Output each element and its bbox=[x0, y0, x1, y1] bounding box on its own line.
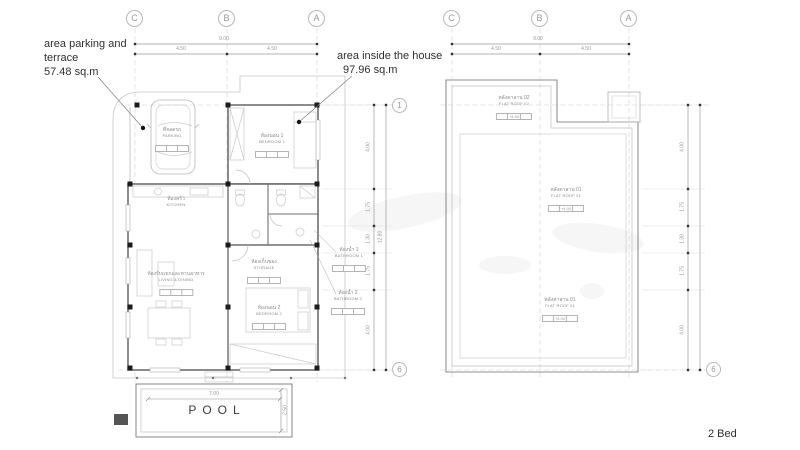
bed-count-label: 2 Bed bbox=[708, 428, 737, 440]
grid-bubble-b-right: B bbox=[531, 10, 548, 27]
room-label-bathroom1: ห้องน้ำ 1 BATHROOM 1 bbox=[332, 248, 366, 277]
dim-v-left-4: 1.75 bbox=[367, 266, 372, 276]
room-living-en: LIVING & DINING bbox=[147, 278, 204, 283]
roof02-en: FLAT ROOF 02 bbox=[496, 102, 532, 107]
room-label-kitchen: ห้องครัว KITCHEN bbox=[167, 197, 186, 207]
dim-v-right-1: 4.00 bbox=[681, 142, 686, 152]
room-label-bathroom2: ห้องน้ำ 2 BATHROOM 2 bbox=[331, 291, 365, 320]
level-strip bbox=[159, 289, 193, 296]
room-storage-en: STORAGE bbox=[247, 266, 281, 271]
dim-overall-right: 9.00 bbox=[533, 37, 543, 42]
dim-v-left-overall: 12.80 bbox=[379, 231, 384, 244]
roof02-level: +4.50 bbox=[508, 114, 521, 119]
dim-overall-left: 9.00 bbox=[219, 37, 229, 42]
level-strip bbox=[332, 265, 366, 272]
dim-v-right-4: 1.75 bbox=[681, 266, 686, 276]
room-label-parking: ที่จอดรถ PARKING bbox=[155, 128, 189, 157]
room-label-bedroom2: ห้องนอน 2 BEDROOM 2 bbox=[252, 306, 286, 335]
dim-seg-left-2: 4.50 bbox=[267, 47, 277, 52]
annotation-parking-area: area parking and terrace bbox=[44, 38, 127, 66]
pool-dim-width: 7.00 bbox=[209, 392, 219, 397]
grid-bubble-a-left: A bbox=[308, 10, 325, 27]
level-strip bbox=[252, 323, 286, 330]
blueprint-canvas: C B A C B A 1 6 6 9.00 4.50 4.50 9.00 4.… bbox=[0, 0, 800, 450]
level-strip bbox=[331, 308, 365, 315]
roof-label-flat-roof-02: หลังคาลาน 02 FLAT ROOF 02 +4.50 bbox=[496, 96, 532, 125]
pool-equipment bbox=[114, 414, 128, 425]
room-label-living: ห้องรับแขกและทานอาหาร LIVING & DINING bbox=[147, 272, 204, 301]
annotation-inside-value: 97.96 sq.m bbox=[343, 64, 397, 78]
pool-label: POOL bbox=[188, 403, 245, 417]
annotation-parking-line1: area parking and bbox=[44, 38, 127, 52]
dim-v-left-3: 1.30 bbox=[367, 234, 372, 244]
dim-seg-right-2: 4.50 bbox=[581, 47, 591, 52]
room-bathroom2-en: BATHROOM 2 bbox=[331, 297, 365, 302]
room-kitchen-en: KITCHEN bbox=[167, 203, 186, 208]
grid-bubble-row6-right: 6 bbox=[706, 362, 721, 377]
level-strip: +4.00 bbox=[542, 315, 578, 322]
dim-seg-right-1: 4.50 bbox=[491, 47, 501, 52]
dim-v-left-5: 4.00 bbox=[367, 325, 372, 335]
pool-dim-depth: 2.50 bbox=[284, 405, 289, 415]
floor-plan-linework bbox=[98, 28, 402, 437]
level-strip: +4.50 bbox=[496, 113, 532, 120]
grid-bubble-row1-left: 1 bbox=[392, 98, 407, 113]
level-strip bbox=[255, 151, 289, 158]
plan-drawing bbox=[0, 0, 800, 450]
roof01b-level: +4.00 bbox=[554, 316, 567, 321]
dim-v-right-5: 4.00 bbox=[681, 325, 686, 335]
roof-label-flat-roof-01-upper: หลังคาลาน 01 FLAT ROOF 01 +4.00 bbox=[548, 188, 584, 217]
annotation-inside-area: area inside the house bbox=[337, 50, 442, 64]
grid-bubble-b-left: B bbox=[218, 10, 235, 27]
level-strip bbox=[247, 277, 281, 284]
annotation-parking-line2: terrace bbox=[44, 52, 127, 66]
dim-v-right-2: 1.75 bbox=[681, 202, 686, 212]
dim-v-left-1: 4.00 bbox=[367, 142, 372, 152]
grid-bubble-c-left: C bbox=[126, 10, 143, 27]
roof-label-flat-roof-01-lower: หลังคาลาน 01 FLAT ROOF 01 +4.00 bbox=[542, 298, 578, 327]
level-strip: +4.00 bbox=[548, 205, 584, 212]
grid-bubble-row6-left: 6 bbox=[392, 362, 407, 377]
room-label-storage: ห้องเก็บของ STORAGE bbox=[247, 260, 281, 289]
roof01b-en: FLAT ROOF 01 bbox=[542, 304, 578, 309]
dim-seg-left-1: 4.50 bbox=[176, 47, 186, 52]
room-bedroom2-en: BEDROOM 2 bbox=[252, 312, 286, 317]
room-label-bedroom1: ห้องนอน 1 BEDROOM 1 bbox=[255, 134, 289, 163]
roof01a-en: FLAT ROOF 01 bbox=[548, 194, 584, 199]
grid-bubble-c-right: C bbox=[443, 10, 460, 27]
room-parking-en: PARKING bbox=[155, 134, 189, 139]
dim-v-left-2: 1.75 bbox=[367, 202, 372, 212]
room-bathroom1-en: BATHROOM 1 bbox=[332, 254, 366, 259]
room-bedroom1-en: BEDROOM 1 bbox=[255, 140, 289, 145]
level-strip bbox=[155, 145, 189, 152]
roof01a-level: +4.00 bbox=[560, 206, 573, 211]
annotation-parking-value: 57.48 sq.m bbox=[44, 66, 98, 80]
grid-bubble-a-right: A bbox=[620, 10, 637, 27]
dim-v-right-3: 1.30 bbox=[681, 234, 686, 244]
